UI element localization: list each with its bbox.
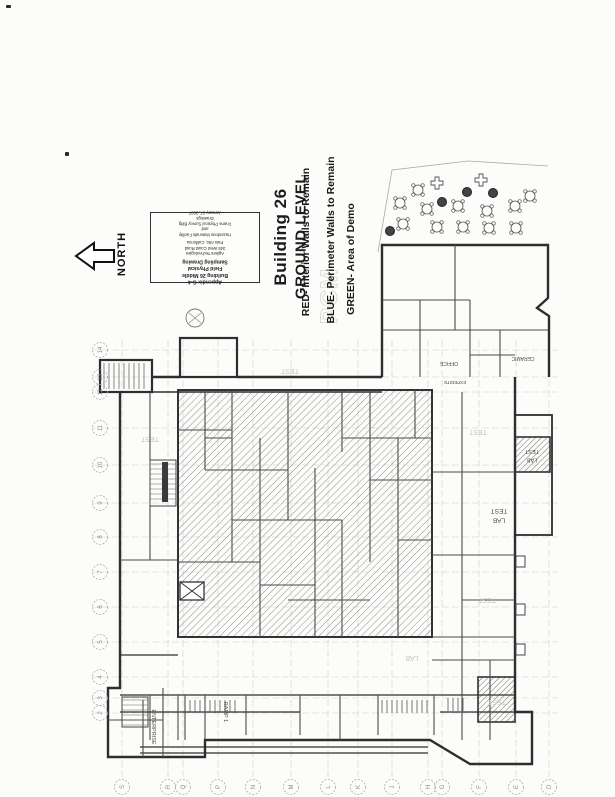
legend-item-blue: BLUE- Perimeter Walls to Remain <box>325 145 337 335</box>
grid-bubble-label: N <box>251 785 257 789</box>
planter-icon <box>431 177 443 189</box>
title-block-text: Appendix G-4Building 26 MiddleField Phys… <box>177 210 233 285</box>
chair-icon <box>397 227 400 230</box>
chair-icon <box>481 205 484 208</box>
column-tab <box>516 604 525 615</box>
chair-icon <box>406 218 409 221</box>
chair-icon <box>457 221 460 224</box>
chair-icon <box>519 222 522 225</box>
north-arrow-icon <box>70 236 120 276</box>
scanned-drawing-page: TESTLABTESTLABCERAMICOFFICEEXPEDITEENTER… <box>0 0 615 797</box>
chair-icon <box>466 230 469 233</box>
chair-icon <box>483 222 486 225</box>
title-block-line: January 27, 2007 <box>177 210 233 215</box>
chair-icon <box>406 227 409 230</box>
faint-note: TEST <box>487 698 506 705</box>
chair-icon <box>533 199 536 202</box>
column-tab <box>516 556 525 567</box>
chair-icon <box>421 184 424 187</box>
legend-item-red: RED- Interior Walls to Remain <box>300 152 312 332</box>
chair-icon <box>452 209 455 212</box>
chair-icon <box>431 230 434 233</box>
grid-bubble-label: D <box>547 784 553 789</box>
grid-bubble-label: 4 <box>98 675 104 679</box>
grid-bubble-label: H <box>426 785 432 789</box>
chair-icon <box>421 193 424 196</box>
tree-icon <box>489 189 498 198</box>
grid-bubble-label: 11 <box>98 424 104 431</box>
grid-bubble-label: 3 <box>98 696 104 700</box>
faint-note: TEST <box>477 596 496 603</box>
grid-bubble-label: M <box>289 785 295 790</box>
chair-icon <box>481 214 484 217</box>
planter-icon <box>475 174 487 186</box>
chair-icon <box>430 203 433 206</box>
chair-icon <box>430 212 433 215</box>
grid-bubble-label: 13 <box>98 373 104 380</box>
chair-icon <box>412 193 415 196</box>
room-label: EXPEDITE <box>444 380 466 385</box>
grid-bubble-label: 9 <box>98 501 104 505</box>
chair-icon <box>452 200 455 203</box>
room-label: LAB <box>526 457 537 463</box>
title-block-line: Hazardous Materials Facility and <box>177 226 233 237</box>
grid-bubble-label: R <box>166 784 172 789</box>
grid-bubble-label: F <box>477 785 483 789</box>
title-block-line: Field Physical Sampling Drawing <box>177 258 233 272</box>
floor-plan-drawing: TESTLABTESTLABCERAMICOFFICEEXPEDITEENTER… <box>0 0 615 797</box>
chair-icon <box>440 221 443 224</box>
room-label: OFFICE <box>439 360 458 366</box>
chair-icon <box>457 230 460 233</box>
room-label: CERAMIC <box>511 355 534 361</box>
chair-icon <box>394 197 397 200</box>
chair-icon <box>492 231 495 234</box>
page-heading-building: Building 26 <box>271 157 291 317</box>
tree-icon <box>386 227 395 236</box>
grid-bubble-label: Q <box>181 784 187 789</box>
legend-item-green: GREEN- Area of Demo <box>345 189 357 329</box>
title-block-line: Building 26 Middle <box>177 272 233 279</box>
title-block-line: Appendix G-4 <box>177 278 233 285</box>
chair-icon <box>518 200 521 203</box>
column-tab <box>516 644 525 655</box>
chair-icon <box>510 222 513 225</box>
perimeter-wall <box>515 415 552 535</box>
tree-icon <box>438 198 447 207</box>
grid-bubble-label: 6 <box>98 605 104 609</box>
chair-icon <box>403 197 406 200</box>
grid-bubble-label: S <box>120 785 126 789</box>
highlighted-wall-segment <box>162 462 168 502</box>
grid-bubble-label: 2 <box>98 711 104 715</box>
chair-icon <box>421 212 424 215</box>
chair-icon <box>490 214 493 217</box>
chair-icon <box>492 222 495 225</box>
tree-icon <box>463 188 472 197</box>
chair-icon <box>461 200 464 203</box>
title-block-line: Frame Physical Survey Bldg Drawings <box>177 215 233 226</box>
chair-icon <box>461 209 464 212</box>
title-block-line: 345 West Coast Road <box>177 245 233 250</box>
title-block: Appendix G-4Building 26 MiddleField Phys… <box>150 212 260 283</box>
chair-icon <box>403 206 406 209</box>
chair-icon <box>524 199 527 202</box>
room-label: TEST <box>524 448 539 454</box>
chair-icon <box>397 218 400 221</box>
grid-bubble-label: J <box>390 786 396 789</box>
chair-icon <box>509 200 512 203</box>
faint-note: TEST <box>140 435 159 442</box>
grid-bubble-label: G <box>440 784 446 789</box>
grid-bubble-label: K <box>356 785 362 789</box>
room-label: TEST <box>491 507 508 514</box>
chair-icon <box>440 230 443 233</box>
faint-note: TEST <box>280 367 299 374</box>
grid-bubble-label: 5 <box>98 640 104 644</box>
chair-icon <box>466 221 469 224</box>
chair-icon <box>412 184 415 187</box>
chair-icon <box>510 231 513 234</box>
grid-bubble-label: 12 <box>98 388 104 395</box>
north-label: NORTH <box>116 224 128 284</box>
chair-icon <box>509 209 512 212</box>
chair-icon <box>431 221 434 224</box>
chair-icon <box>394 206 397 209</box>
grid-bubble-label: L <box>326 785 332 789</box>
chair-icon <box>483 231 486 234</box>
grid-bubble-label: 10 <box>98 461 104 468</box>
chair-icon <box>490 205 493 208</box>
perimeter-wall <box>180 338 237 377</box>
grid-bubble-label: 8 <box>98 535 104 539</box>
street-label: ENTERPRISE <box>150 709 156 744</box>
grid-bubble-label: 7 <box>98 570 104 574</box>
grid-bubble-label: P <box>216 785 222 789</box>
chair-icon <box>524 190 527 193</box>
room-label: LAB <box>493 517 505 524</box>
faint-note: LAB <box>405 654 419 661</box>
chair-icon <box>533 190 536 193</box>
faint-note: TEST <box>468 428 487 435</box>
chair-icon <box>421 203 424 206</box>
title-block-line: Agilent Technologies <box>177 250 233 255</box>
grid-bubble-label: 14 <box>98 346 104 353</box>
grid-bubble-label: E <box>514 785 520 789</box>
street-label: RAMP 1 <box>222 702 228 722</box>
chair-icon <box>519 231 522 234</box>
chair-icon <box>518 209 521 212</box>
